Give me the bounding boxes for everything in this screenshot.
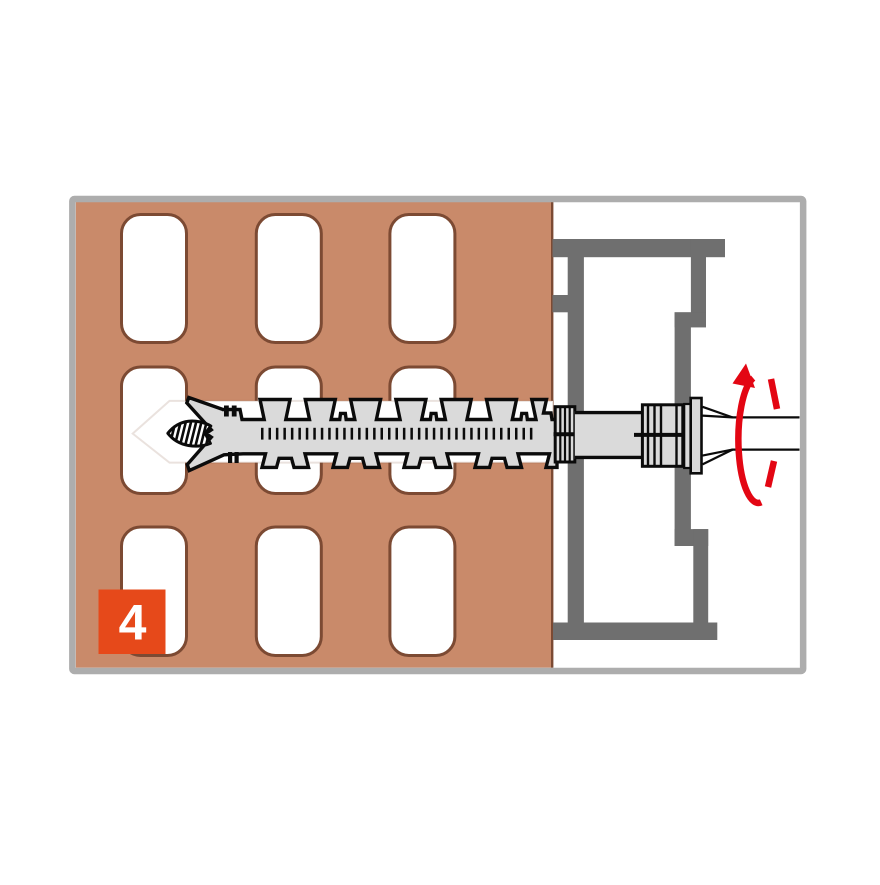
svg-text:4: 4 (119, 595, 147, 651)
